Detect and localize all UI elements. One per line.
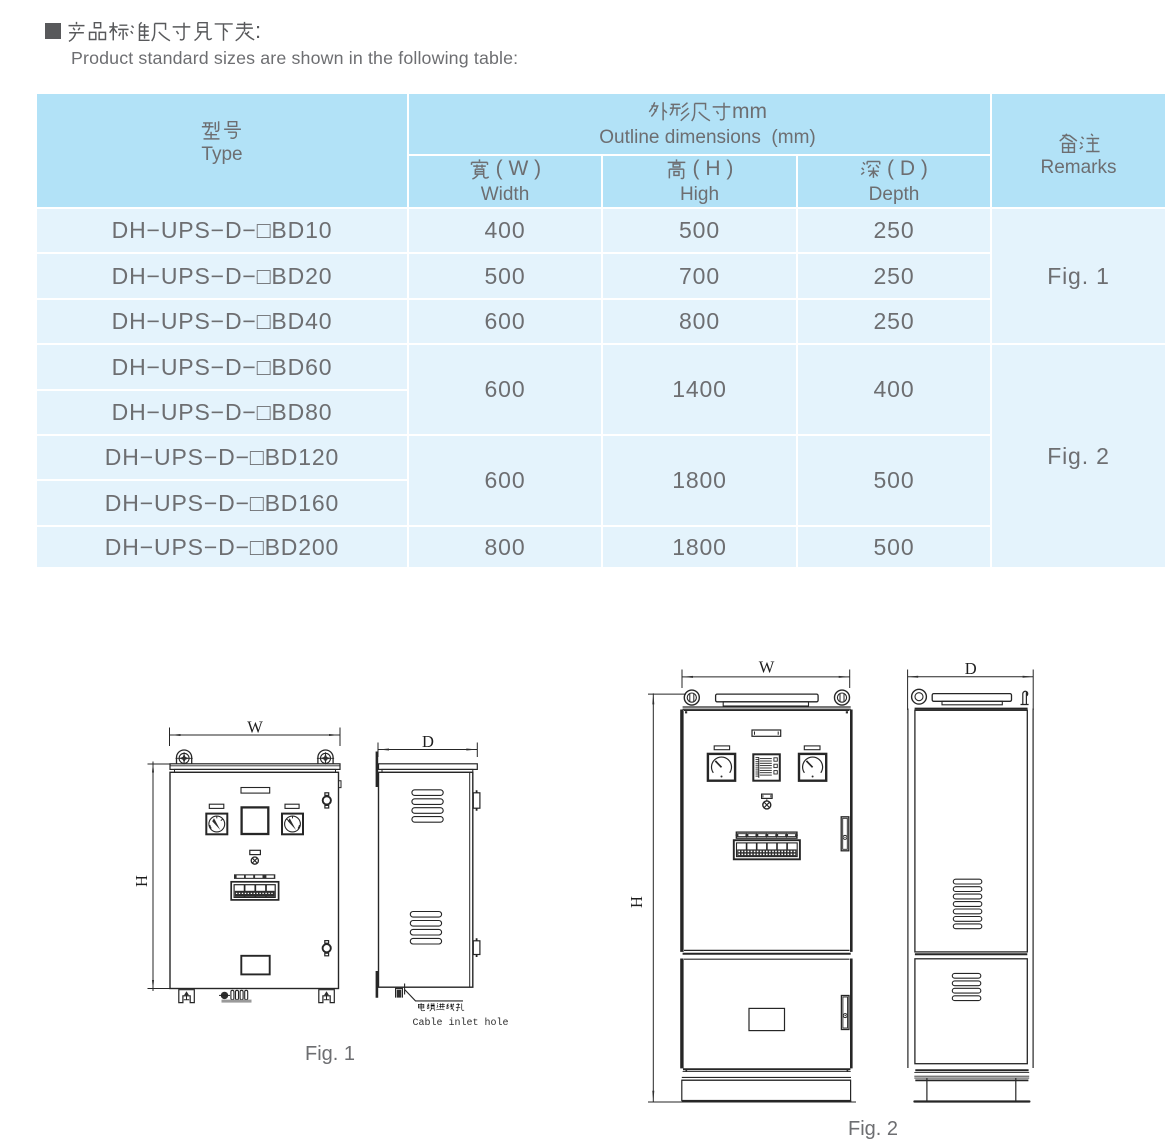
svg-text:H: H <box>627 896 646 908</box>
svg-text:D: D <box>422 732 434 751</box>
svg-text:Fig. 2: Fig. 2 <box>848 1118 898 1140</box>
svg-text:D: D <box>965 659 977 678</box>
svg-text:Fig. 1: Fig. 1 <box>305 1043 355 1065</box>
svg-text:W: W <box>759 658 775 677</box>
svg-text:Cable inlet hole: Cable inlet hole <box>413 1017 509 1029</box>
svg-text:H: H <box>132 875 151 887</box>
svg-text:W: W <box>247 718 263 737</box>
